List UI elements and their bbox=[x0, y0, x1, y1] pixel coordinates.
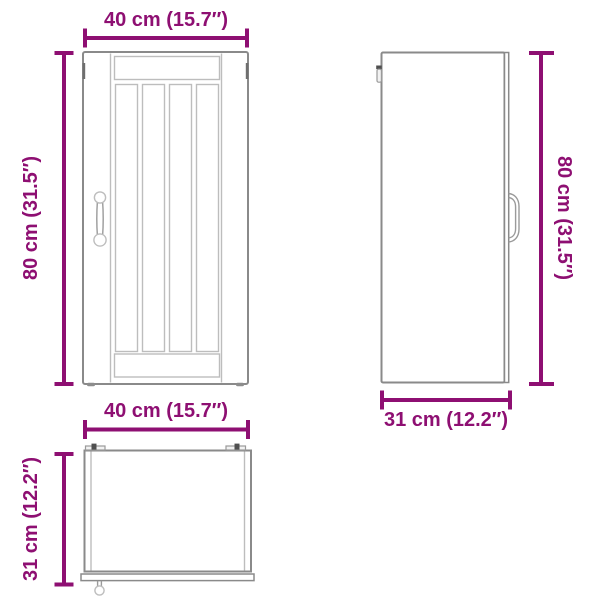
side-hinge bbox=[376, 66, 382, 83]
front-slat-panel bbox=[197, 85, 219, 352]
front-right-foot bbox=[236, 383, 244, 386]
dim-label-side-height: 80 cm (31.5″) bbox=[551, 98, 577, 338]
dim-label-front-height: 80 cm (31.5″) bbox=[18, 98, 44, 338]
side-door-handle bbox=[509, 194, 520, 243]
dim-label-top-depth: 31 cm (12.2″) bbox=[18, 399, 44, 600]
front-bottom-panel bbox=[115, 354, 220, 377]
front-cabinet-outline bbox=[83, 52, 248, 384]
front-slat-panel bbox=[116, 85, 138, 352]
dim-label-top-width: 40 cm (15.7″) bbox=[46, 398, 286, 424]
top-right-hinge bbox=[226, 444, 246, 450]
top-handle-knob bbox=[95, 581, 104, 595]
dim-label-front-width: 40 cm (15.7″) bbox=[46, 7, 286, 33]
dimension-diagram: 40 cm (15.7″) 80 cm (31.5″) 80 cm (31.5″… bbox=[0, 0, 600, 600]
dim-label-side-depth: 31 cm (12.2″) bbox=[326, 407, 566, 433]
front-left-foot bbox=[87, 383, 95, 386]
front-top-panel bbox=[115, 57, 220, 80]
side-door-edge bbox=[505, 53, 509, 383]
front-view bbox=[83, 52, 248, 386]
front-slat-panel bbox=[170, 85, 192, 352]
dim-line-top-depth bbox=[55, 454, 74, 585]
side-cabinet-outline bbox=[382, 53, 505, 383]
top-view bbox=[81, 444, 254, 596]
top-door-strip bbox=[81, 574, 254, 581]
top-cabinet-outline bbox=[85, 451, 252, 572]
dim-line-front-height bbox=[55, 53, 74, 384]
front-slat-panel bbox=[143, 85, 165, 352]
top-left-hinge bbox=[86, 444, 106, 450]
side-view bbox=[376, 53, 519, 383]
furniture-line-art bbox=[0, 0, 600, 600]
